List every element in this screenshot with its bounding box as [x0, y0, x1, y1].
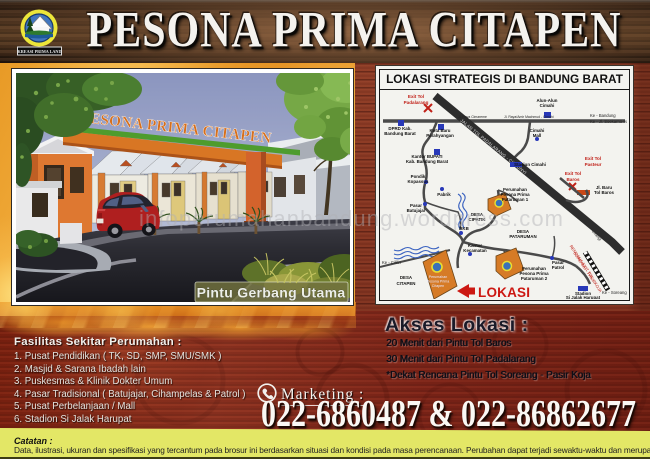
svg-text:Exit Tol: Exit Tol — [408, 94, 424, 99]
svg-text:Parahyangan: Parahyangan — [426, 133, 454, 138]
svg-text:Cimahi: Cimahi — [540, 103, 555, 108]
svg-text:Ke - Cililin: Ke - Cililin — [382, 260, 402, 265]
svg-text:Exit Tol: Exit Tol — [565, 171, 581, 176]
svg-text:Kab. Bandung Barat: Kab. Bandung Barat — [406, 159, 449, 164]
svg-text:Stasiun Cimahi: Stasiun Cimahi — [514, 162, 546, 167]
svg-text:LOKASI: LOKASI — [478, 285, 530, 299]
svg-text:Pataruman 1: Pataruman 1 — [502, 197, 529, 202]
svg-text:Ke - Soreang: Ke - Soreang — [602, 290, 627, 295]
svg-text:Pataruman 2: Pataruman 2 — [521, 276, 548, 281]
svg-text:Padalarang: Padalarang — [404, 100, 429, 105]
svg-text:Patrol: Patrol — [552, 265, 564, 270]
svg-text:Pabrik: Pabrik — [437, 192, 451, 197]
svg-text:KREASI PRIMA LAND: KREASI PRIMA LAND — [18, 49, 62, 54]
svg-text:Perumahan: Perumahan — [429, 275, 448, 279]
svg-text:Ke - Jl. Soekarno-Hatta: Ke - Jl. Soekarno-Hatta — [590, 119, 627, 124]
svg-text:Kopassus: Kopassus — [408, 179, 430, 184]
svg-text:DESA: DESA — [400, 275, 413, 280]
svg-text:Kecamatan: Kecamatan — [463, 248, 487, 253]
svg-text:Exit Tol: Exit Tol — [585, 156, 601, 161]
svg-text:Mall: Mall — [533, 133, 542, 138]
svg-text:Jl. Raya Cimareme: Jl. Raya Cimareme — [458, 115, 487, 119]
svg-text:Tol Baros: Tol Baros — [594, 190, 614, 195]
svg-text:CITAPEN: CITAPEN — [397, 281, 416, 286]
svg-text:Ke - Bandung: Ke - Bandung — [590, 113, 616, 118]
svg-text:Pesona Prima: Pesona Prima — [427, 280, 450, 284]
svg-text:Pasteur: Pasteur — [585, 162, 602, 167]
svg-text:Citapen: Citapen — [432, 284, 444, 288]
svg-text:Pintu Gerbang Utama: Pintu Gerbang Utama — [196, 284, 345, 300]
svg-text:PATARUMAN: PATARUMAN — [509, 234, 536, 239]
svg-text:Bandung Barat: Bandung Barat — [384, 131, 416, 136]
svg-text:Si Jalak Harupat: Si Jalak Harupat — [566, 295, 601, 299]
svg-text:Jl. Raya/Amir Machmud - Cimahi: Jl. Raya/Amir Machmud - Cimahi — [504, 115, 554, 119]
svg-text:Baros: Baros — [566, 177, 579, 182]
